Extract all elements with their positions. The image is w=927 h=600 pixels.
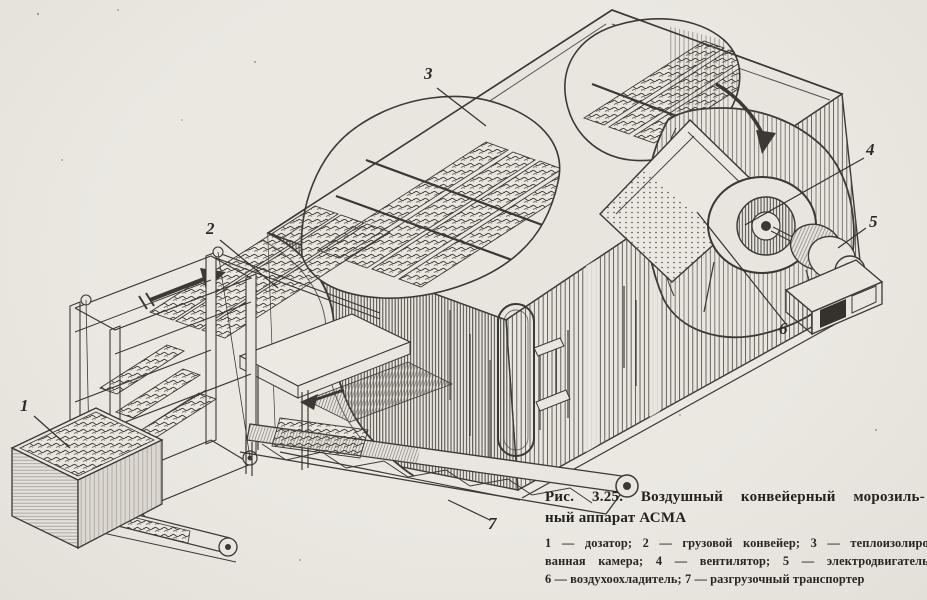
callout-1: 1 — [20, 396, 29, 416]
callout-6: 6 — [779, 319, 788, 339]
legend-line-3: 6 — воздухоохладитель; 7 — разгрузочный … — [545, 570, 927, 588]
legend-line-2: ванная камера; 4 — вентилятор; 5 — элект… — [545, 552, 927, 570]
callout-5: 5 — [869, 212, 878, 232]
figure-caption: Рис. 3.25. Воздушный конвейерный морозил… — [545, 487, 925, 588]
book-page: 1 2 3 4 5 6 7 Рис. 3.25. Воздушный конве… — [0, 0, 927, 600]
caption-line-2: ный аппарат АСМА — [545, 508, 925, 529]
legend-line-1: 1 — дозатор; 2 — грузовой конвейер; 3 — … — [545, 534, 927, 552]
caption-line-1: Рис. 3.25. Воздушный конвейерный морозил… — [545, 487, 925, 508]
figure-legend: 1 — дозатор; 2 — грузовой конвейер; 3 — … — [545, 534, 927, 588]
callout-2: 2 — [206, 219, 215, 239]
callout-3: 3 — [424, 64, 433, 84]
callout-7: 7 — [488, 514, 497, 534]
callout-4: 4 — [866, 140, 875, 160]
